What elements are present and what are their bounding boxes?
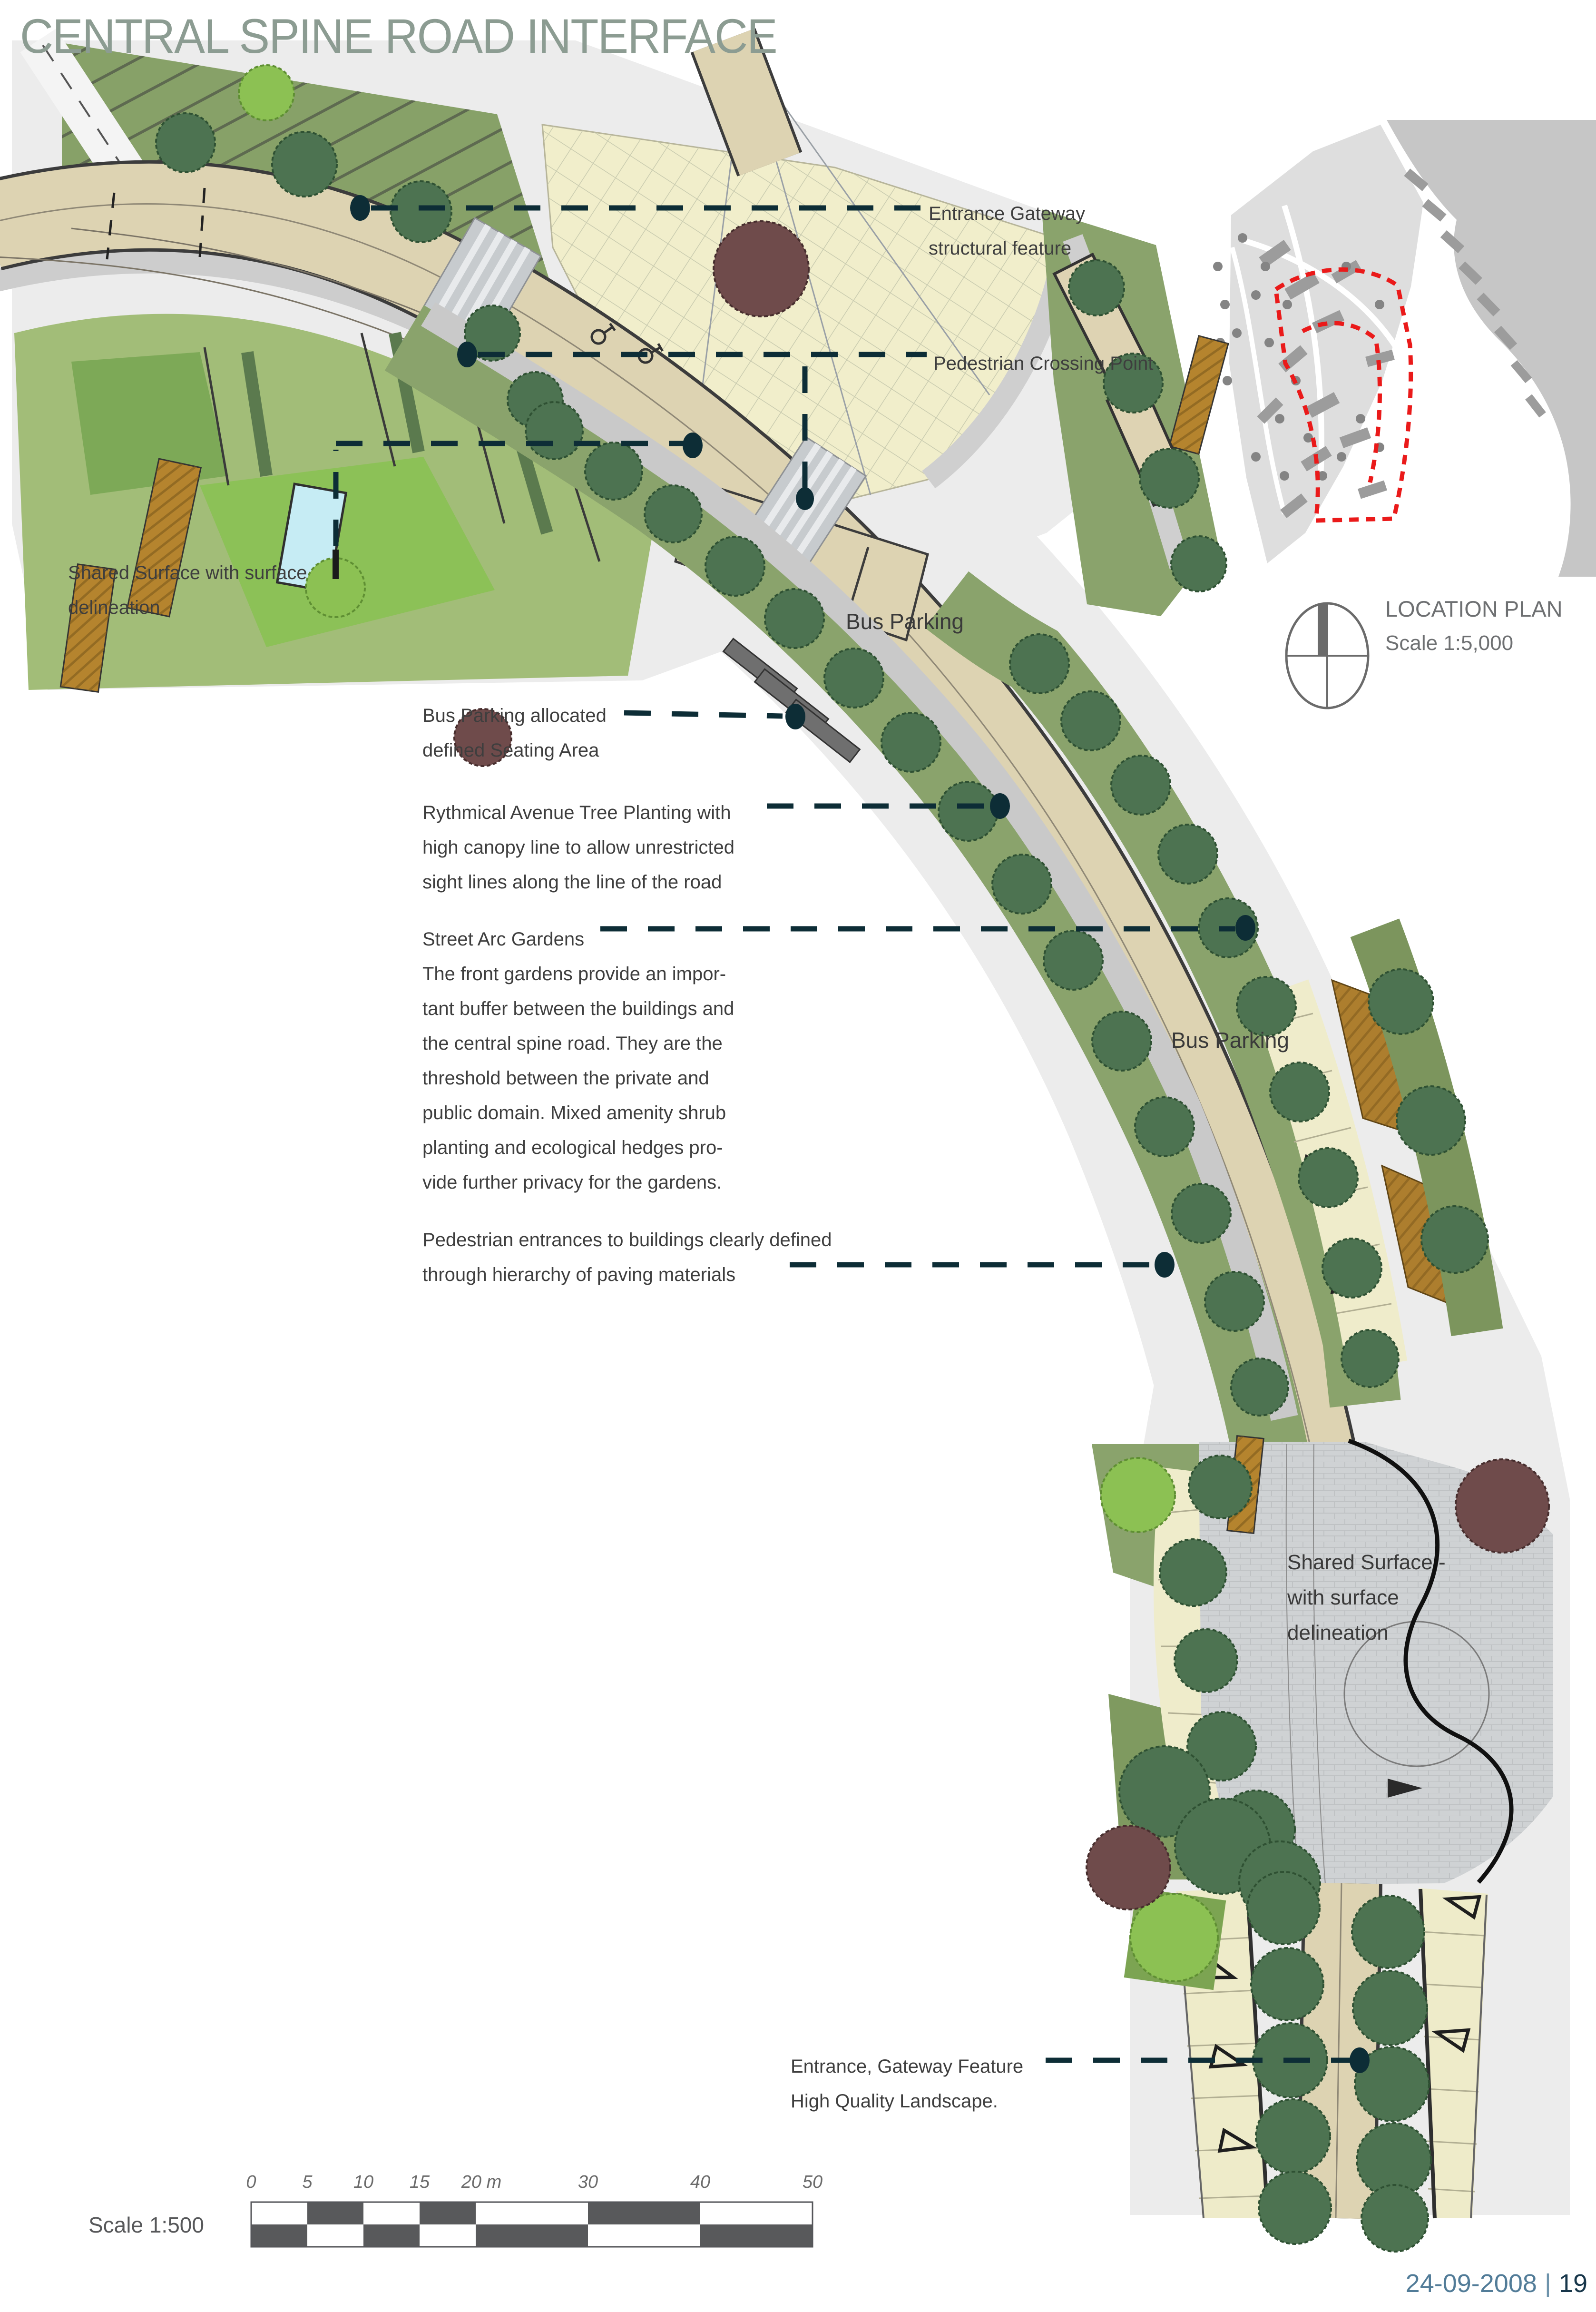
- annotation-line: high canopy line to allow unrestricted: [422, 830, 734, 865]
- svg-text:Shared Surface -: Shared Surface -: [1287, 1551, 1446, 1574]
- svg-text:50: 50: [803, 2172, 822, 2192]
- page-footer: 24-09-2008 | 19: [1406, 2269, 1587, 2298]
- annotation-bus-parking-seating: Bus Parking allocated defined Seating Ar…: [422, 699, 607, 768]
- annotation-entrance-feature: Entrance, Gateway Feature High Quality L…: [791, 2049, 1023, 2119]
- plan-label-bus-parking-2: Bus Parking: [1171, 1028, 1289, 1053]
- location-plan-title: LOCATION PLAN: [1385, 596, 1563, 621]
- svg-text:10: 10: [353, 2172, 373, 2192]
- location-plan-caption: LOCATION PLAN Scale 1:5,000: [1385, 596, 1563, 655]
- annotation-line: Entrance, Gateway Feature: [791, 2049, 1023, 2084]
- annotation-line: delineation: [68, 590, 307, 625]
- svg-text:20 m: 20 m: [461, 2172, 501, 2192]
- annotation-line: vide further privacy for the gardens.: [422, 1165, 734, 1200]
- annotation-line: structural feature: [929, 231, 1085, 266]
- location-plan-map: [1213, 120, 1596, 577]
- svg-text:with surface: with surface: [1287, 1586, 1399, 1609]
- annotation-line: the central spine road. They are the: [422, 1026, 734, 1061]
- scale-bar: 0 5 10 15 20 m 30 40 50 Scale 1:500: [88, 2172, 822, 2247]
- svg-text:5: 5: [302, 2172, 313, 2192]
- annotation-line: threshold between the private and: [422, 1061, 734, 1096]
- annotation-entrance-gateway: Entrance Gateway structural feature: [929, 197, 1085, 266]
- north-arrow-icon: [1286, 603, 1368, 708]
- scale-bar-label: Scale 1:500: [88, 2213, 204, 2237]
- location-plan-scale: Scale 1:5,000: [1385, 631, 1513, 655]
- footer-page-number: 19: [1559, 2269, 1587, 2298]
- annotation-line: sight lines along the line of the road: [422, 865, 734, 900]
- annotation-line: public domain. Mixed amenity shrub: [422, 1096, 734, 1131]
- annotation-line: Entrance Gateway: [929, 197, 1085, 231]
- annotation-shared-surface-left: Shared Surface with surface delineation: [68, 556, 307, 625]
- svg-text:15: 15: [410, 2172, 430, 2192]
- annotation-street-arc-gardens: Street Arc Gardens The front gardens pro…: [422, 922, 734, 1200]
- annotation-line: Pedestrian Crossing Point: [933, 346, 1153, 381]
- leader-shared-surface-tick: [333, 550, 339, 579]
- annotation-line: planting and ecological hedges pro-: [422, 1131, 734, 1165]
- footer-separator: |: [1545, 2269, 1551, 2298]
- annotation-line: The front gardens provide an impor-: [422, 957, 734, 992]
- annotation-line: Pedestrian entrances to buildings clearl…: [422, 1223, 832, 1258]
- document-page: Bus Parking Bus Parking Shared Surface -…: [0, 0, 1596, 2312]
- leader-bus-parking-seating: [624, 713, 783, 716]
- svg-text:delineation: delineation: [1287, 1621, 1389, 1644]
- annotation-line: through hierarchy of paving materials: [422, 1258, 832, 1292]
- annotation-line: High Quality Landscape.: [791, 2084, 1023, 2119]
- plan-label-bus-parking-1: Bus Parking: [846, 609, 964, 634]
- annotation-line: Bus Parking allocated: [422, 699, 607, 733]
- annotation-avenue-trees: Rythmical Avenue Tree Planting with high…: [422, 796, 734, 900]
- annotation-line: Shared Surface with surface: [68, 556, 307, 590]
- page-title: CENTRAL SPINE ROAD INTERFACE: [20, 9, 777, 64]
- annotation-line: Street Arc Gardens: [422, 922, 734, 957]
- svg-text:30: 30: [578, 2172, 598, 2192]
- svg-text:40: 40: [690, 2172, 710, 2192]
- annotation-line: defined Seating Area: [422, 733, 607, 768]
- annotation-line: Rythmical Avenue Tree Planting with: [422, 796, 734, 830]
- svg-text:0: 0: [246, 2172, 256, 2192]
- footer-date: 24-09-2008: [1406, 2269, 1537, 2298]
- annotation-pedestrian-crossing: Pedestrian Crossing Point: [933, 346, 1153, 381]
- site-plan: Bus Parking Bus Parking Shared Surface -…: [0, 0, 1596, 2312]
- annotation-line: tant buffer between the buildings and: [422, 992, 734, 1026]
- annotation-pedestrian-entrances: Pedestrian entrances to buildings clearl…: [422, 1223, 832, 1292]
